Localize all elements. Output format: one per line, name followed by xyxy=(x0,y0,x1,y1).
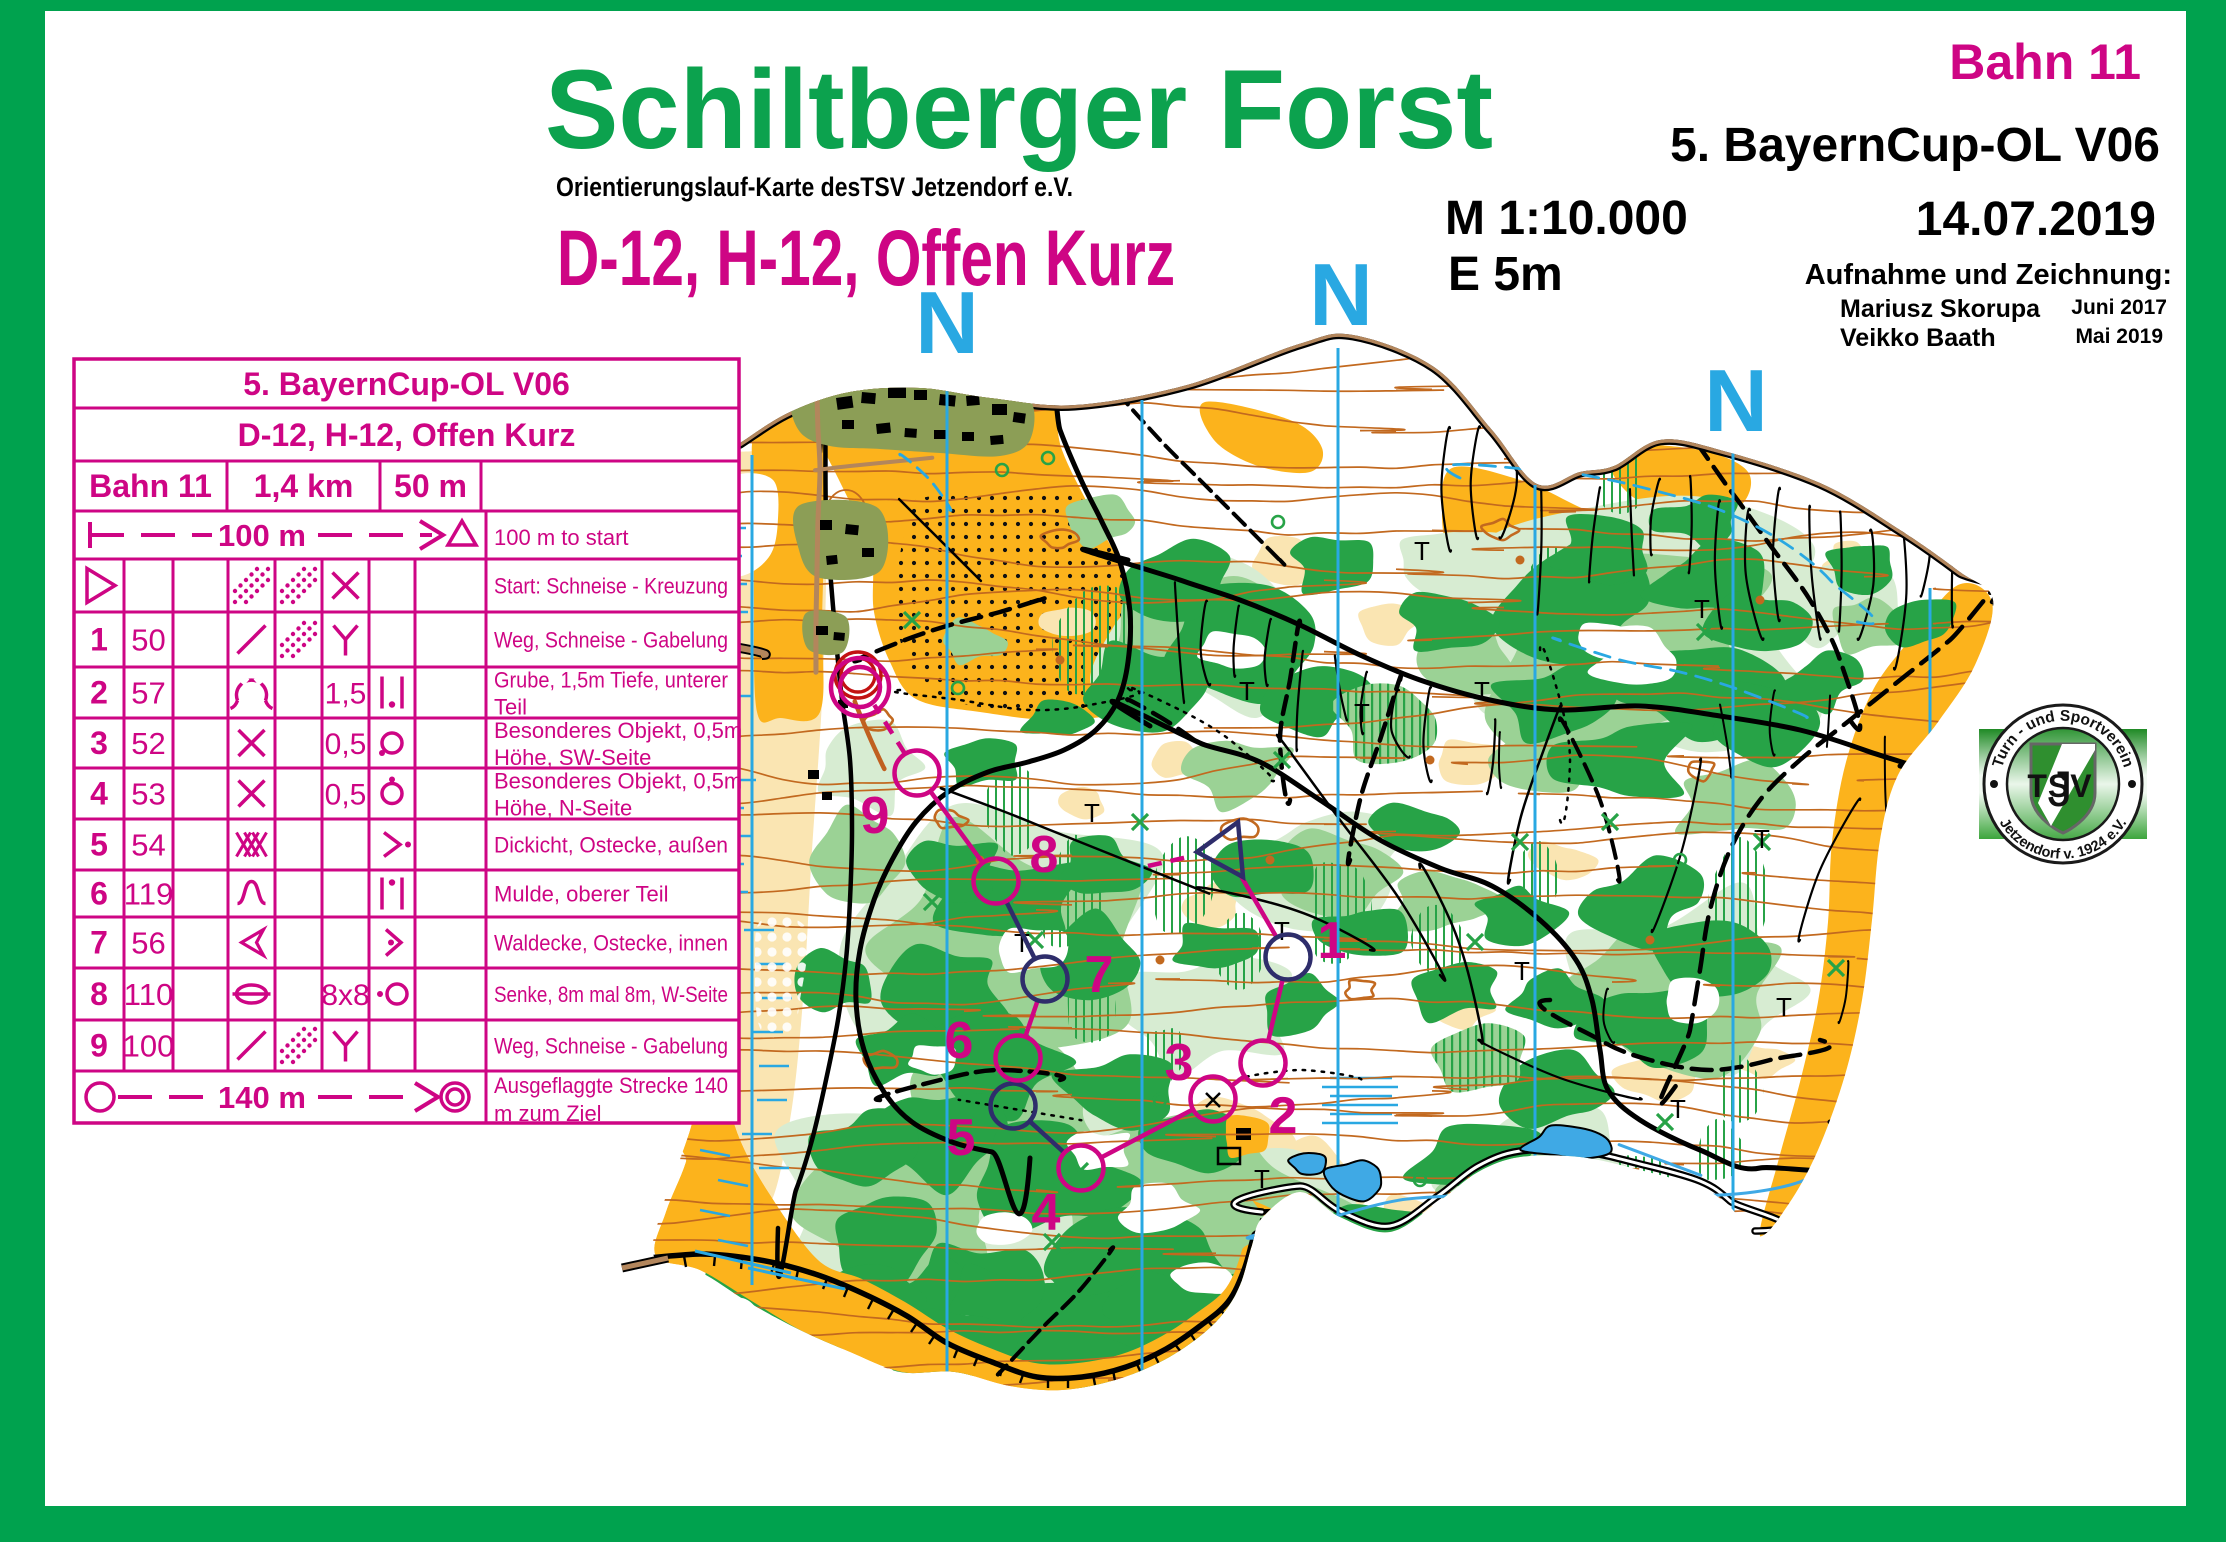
svg-text:3: 3 xyxy=(1165,1034,1194,1092)
svg-text:Mai 2019: Mai 2019 xyxy=(2075,325,2163,348)
svg-text:Höhe, N-Seite: Höhe, N-Seite xyxy=(494,796,632,821)
svg-text:1: 1 xyxy=(1318,912,1347,970)
svg-text:Senke, 8m mal 8m, W-Seite: Senke, 8m mal 8m, W-Seite xyxy=(494,982,728,1007)
svg-text:4: 4 xyxy=(90,776,108,812)
svg-text:N: N xyxy=(915,273,979,372)
svg-text:Höhe, SW-Seite: Höhe, SW-Seite xyxy=(494,745,651,770)
svg-text:Bahn 11: Bahn 11 xyxy=(1949,34,2141,90)
svg-text:Orientierungslauf-Karte desTSV: Orientierungslauf-Karte desTSV Jetzendor… xyxy=(556,172,1073,202)
svg-text:5: 5 xyxy=(90,827,108,863)
svg-text:T: T xyxy=(1414,536,1430,566)
svg-text:7: 7 xyxy=(90,925,108,961)
svg-text:T: T xyxy=(1694,594,1710,624)
svg-text:6: 6 xyxy=(90,876,108,912)
svg-text:Mulde, oberer Teil: Mulde, oberer Teil xyxy=(494,882,668,907)
svg-text:2: 2 xyxy=(1269,1087,1298,1145)
svg-text:57: 57 xyxy=(131,676,165,711)
svg-text:Start: Schneise - Kreuzung: Start: Schneise - Kreuzung xyxy=(494,574,728,599)
svg-text:4: 4 xyxy=(1032,1184,1061,1242)
svg-text:Schiltberger Forst: Schiltberger Forst xyxy=(545,47,1493,172)
svg-text:Teil: Teil xyxy=(494,695,527,720)
svg-text:Dickicht, Ostecke, außen: Dickicht, Ostecke, außen xyxy=(494,833,728,858)
svg-text:T: T xyxy=(1239,676,1255,706)
svg-text:T: T xyxy=(1560,449,1576,479)
svg-text:T: T xyxy=(1474,676,1490,706)
svg-text:100: 100 xyxy=(123,1029,175,1064)
svg-text:110: 110 xyxy=(124,977,173,1012)
svg-text:Waldecke, Ostecke, innen: Waldecke, Ostecke, innen xyxy=(494,931,728,956)
svg-text:D-12, H-12, Offen Kurz: D-12, H-12, Offen Kurz xyxy=(238,417,576,453)
svg-text:T: T xyxy=(1084,798,1100,828)
svg-text:14.07.2019: 14.07.2019 xyxy=(1916,193,2156,246)
svg-text:M 1:10.000: M 1:10.000 xyxy=(1445,192,1688,245)
svg-text:56: 56 xyxy=(131,926,165,961)
svg-text:8: 8 xyxy=(1030,826,1059,884)
svg-text:54: 54 xyxy=(131,828,165,863)
svg-text:6: 6 xyxy=(945,1012,974,1070)
svg-text:Besonderes Objekt, 0,5m: Besonderes Objekt, 0,5m xyxy=(494,769,742,794)
svg-text:5. BayernCup-OL V06: 5. BayernCup-OL V06 xyxy=(243,366,570,402)
svg-text:52: 52 xyxy=(131,726,165,761)
svg-text:Ausgeflaggte Strecke 140: Ausgeflaggte Strecke 140 xyxy=(494,1073,728,1098)
svg-text:T: T xyxy=(1354,698,1370,728)
svg-text:T: T xyxy=(1670,1094,1686,1124)
svg-text:8x8: 8x8 xyxy=(321,979,369,1012)
svg-text:1,5: 1,5 xyxy=(325,678,367,711)
svg-text:119: 119 xyxy=(124,877,173,912)
svg-text:Weg, Schneise - Gabelung: Weg, Schneise - Gabelung xyxy=(494,1034,728,1059)
svg-text:Bahn 11: Bahn 11 xyxy=(89,468,212,504)
svg-text:E 5m: E 5m xyxy=(1448,248,1563,301)
svg-text:T: T xyxy=(1514,956,1530,986)
svg-text:J: J xyxy=(2048,761,2073,817)
svg-text:Aufnahme und Zeichnung:: Aufnahme und Zeichnung: xyxy=(1805,259,2172,291)
svg-text:T: T xyxy=(1254,1164,1270,1194)
svg-text:N: N xyxy=(1309,245,1373,344)
svg-text:5: 5 xyxy=(947,1109,976,1167)
svg-text:0,5: 0,5 xyxy=(325,728,367,761)
svg-text:53: 53 xyxy=(131,777,165,812)
svg-text:Mariusz Skorupa: Mariusz Skorupa xyxy=(1840,295,2041,323)
svg-text:1: 1 xyxy=(90,622,108,658)
svg-text:8: 8 xyxy=(90,976,108,1012)
svg-text:D-12, H-12, Offen Kurz: D-12, H-12, Offen Kurz xyxy=(557,213,1175,302)
svg-text:100 m to start: 100 m to start xyxy=(494,525,629,550)
svg-text:1,4 km: 1,4 km xyxy=(254,468,354,504)
svg-text:T: T xyxy=(944,1466,960,1496)
svg-text:9: 9 xyxy=(861,787,890,845)
svg-text:0,5: 0,5 xyxy=(325,779,367,812)
svg-text:m zum Ziel: m zum Ziel xyxy=(494,1101,602,1126)
svg-text:5. BayernCup-OL V06: 5. BayernCup-OL V06 xyxy=(1670,119,2160,172)
svg-text:100 m: 100 m xyxy=(218,518,306,553)
svg-text:T: T xyxy=(1776,992,1792,1022)
svg-text:7: 7 xyxy=(1085,946,1114,1004)
svg-text:Weg, Schneise - Gabelung: Weg, Schneise - Gabelung xyxy=(494,628,728,653)
svg-text:Grube, 1,5m Tiefe, unterer: Grube, 1,5m Tiefe, unterer xyxy=(494,668,728,693)
svg-text:Juni 2017: Juni 2017 xyxy=(2071,296,2167,319)
svg-text:9: 9 xyxy=(90,1028,108,1064)
svg-text:50: 50 xyxy=(131,623,165,658)
svg-text:3: 3 xyxy=(90,725,108,761)
svg-text:2: 2 xyxy=(90,675,108,711)
svg-text:50 m: 50 m xyxy=(394,468,467,504)
svg-text:T: T xyxy=(1274,916,1290,946)
svg-text:140 m: 140 m xyxy=(218,1080,306,1115)
svg-text:Veikko Baath: Veikko Baath xyxy=(1840,324,1996,352)
svg-text:Besonderes Objekt, 0,5m: Besonderes Objekt, 0,5m xyxy=(494,718,742,743)
svg-text:T: T xyxy=(1754,824,1770,854)
svg-text:N: N xyxy=(1704,351,1768,450)
